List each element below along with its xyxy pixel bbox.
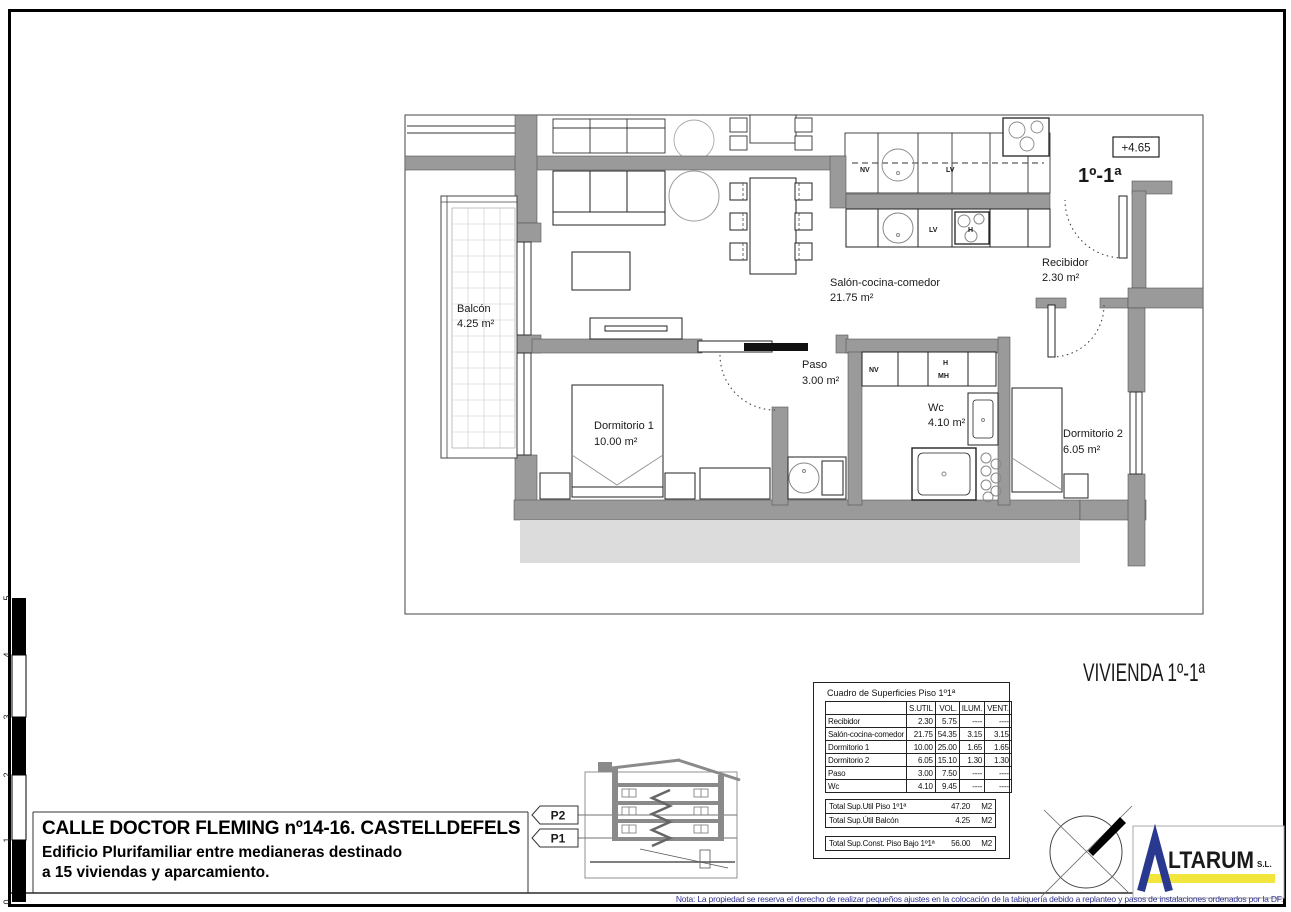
party-wall-step <box>830 156 846 208</box>
project-address: CALLE DOCTOR FLEMING nº14-16. CASTELLDEF… <box>42 818 522 840</box>
total-label: Total Sup.Const. Piso Bajo 1º1ª <box>826 839 935 848</box>
project-description-1: Edificio Plurifamiliar entre medianeras … <box>42 844 522 862</box>
sliding-door-leaf <box>744 343 808 351</box>
row-sutil: 2.30 <box>907 715 936 728</box>
bedroom1-east-wall <box>772 407 788 505</box>
room-label-recibidor: Recibidor <box>1042 257 1089 269</box>
row-vent: 1.30 <box>985 754 1012 767</box>
unit-label: 1º-1ª <box>1078 165 1122 187</box>
total-label: Total Sup.Util Piso 1º1ª <box>826 802 934 811</box>
surface-table-title: Cuadro de Superficies Piso 1º1ª <box>827 688 1009 698</box>
totals-block-2: Total Sup.Const. Piso Bajo 1º1ª 56.00 M2 <box>825 836 996 851</box>
total-unit: M2 <box>970 839 995 848</box>
left-wall-bottom <box>515 455 537 502</box>
row-sutil: 21.75 <box>907 728 936 741</box>
party-wall-west <box>405 156 845 170</box>
coffee-table <box>572 252 630 290</box>
hall-door-leaf <box>1048 305 1055 357</box>
logo-name: LTARUM <box>1168 847 1254 874</box>
north-compass <box>1042 806 1132 896</box>
row-ilum: ---- <box>959 715 984 728</box>
table-row: Recibidor 2.30 5.75 ---- ---- <box>826 715 1012 728</box>
total-value: 4.25 <box>934 816 970 825</box>
left-wall-block-1 <box>515 223 541 242</box>
surface-table-grid: S.UTIL VOL. ILUM. VENT. Recibidor 2.30 5… <box>825 701 1012 793</box>
row-vol: 9.45 <box>935 780 959 793</box>
row-vol: 7.50 <box>935 767 959 780</box>
dishwasher-label: LV <box>929 227 938 234</box>
room-area-recibidor: 2.30 m² <box>1042 272 1080 284</box>
room-label-balcon: Balcón <box>457 303 491 315</box>
room-area-balcon: 4.25 m² <box>457 318 495 330</box>
neighbour-fridge-label: NV <box>860 167 870 174</box>
utility-micro-label: MH <box>938 373 949 380</box>
total-row: Total Sup.Const. Piso Bajo 1º1ª 56.00 M2 <box>826 837 995 850</box>
dining-table <box>750 178 796 274</box>
row-sutil: 10.00 <box>907 741 936 754</box>
left-wall-top <box>515 115 537 223</box>
neighbour-dishwasher-label: LV <box>946 167 955 174</box>
sheet-graphics: 5 4 3 2 1 0 NV LV <box>0 0 1291 912</box>
row-name: Dormitorio 1 <box>826 741 907 754</box>
row-ilum: 3.15 <box>959 728 984 741</box>
total-row: Total Sup.Util Piso 1º1ª 47.20 M2 <box>826 800 995 813</box>
row-vent: ---- <box>985 767 1012 780</box>
row-vol: 5.75 <box>935 715 959 728</box>
table-header-row: S.UTIL VOL. ILUM. VENT. <box>826 702 1012 715</box>
row-ilum: 1.30 <box>959 754 984 767</box>
room-area-paso: 3.00 m² <box>802 375 840 387</box>
nightstand-1a <box>540 473 570 499</box>
surface-table: Cuadro de Superficies Piso 1º1ª S.UTIL V… <box>813 682 1010 859</box>
wc-east-wall <box>998 337 1010 505</box>
room-label-wc: Wc <box>928 402 944 414</box>
section-windows <box>622 789 708 833</box>
dresser <box>700 468 770 499</box>
room-label-salon: Salón-cocina-comedor <box>830 277 940 289</box>
col-sutil: S.UTIL <box>907 702 936 715</box>
row-name: Wc <box>826 780 907 793</box>
row-vent: 1.65 <box>985 741 1012 754</box>
row-name: Paso <box>826 767 907 780</box>
building-section <box>585 760 740 878</box>
utility-column <box>862 352 996 386</box>
scale-tick-0: 0 <box>2 899 12 904</box>
level-label: +4.65 <box>1121 143 1150 155</box>
laundry-nook <box>788 457 846 499</box>
tv <box>605 326 667 331</box>
vivienda-label: VIVIENDA 1º-1ª <box>1083 659 1206 687</box>
totals-block-1: Total Sup.Util Piso 1º1ª 47.20 M2 Total … <box>825 799 996 828</box>
row-vent: ---- <box>985 780 1012 793</box>
utility-oven-label: H <box>943 360 948 367</box>
row-vol: 15.10 <box>935 754 959 767</box>
table-row: Paso 3.00 7.50 ---- ---- <box>826 767 1012 780</box>
bedroom2-east-wall-top <box>1128 308 1145 392</box>
revision-note: Nota: La propiedad se reserva el derecho… <box>560 894 1283 904</box>
row-vent: 3.15 <box>985 728 1012 741</box>
corridor-south-wall <box>846 339 1006 353</box>
stair-wall-column <box>1132 191 1146 288</box>
bottom-wall <box>514 500 1080 520</box>
roof-slope <box>678 760 740 780</box>
total-unit: M2 <box>970 816 995 825</box>
room-area-salon: 21.75 m² <box>830 292 874 304</box>
project-description-2: a 15 viviendas y aparcamiento. <box>42 864 522 882</box>
room-label-dormitorio1: Dormitorio 1 <box>594 420 654 432</box>
scale-bar: 5 4 3 2 1 0 <box>2 595 26 904</box>
scale-tick-1: 1 <box>2 837 12 842</box>
p2-label: P2 <box>551 809 566 823</box>
hob-label: H <box>968 227 973 234</box>
sofa <box>553 171 665 225</box>
col-vent: VENT. <box>985 702 1012 715</box>
bed-2 <box>1012 388 1062 492</box>
row-name: Dormitorio 2 <box>826 754 907 767</box>
room-area-dormitorio2: 6.05 m² <box>1063 444 1101 456</box>
row-ilum: ---- <box>959 780 984 793</box>
total-value: 56.00 <box>935 839 971 848</box>
total-unit: M2 <box>970 802 995 811</box>
room-label-paso: Paso <box>802 359 827 371</box>
col-ilum: ILUM. <box>959 702 984 715</box>
row-ilum: 1.65 <box>959 741 984 754</box>
total-label: Total Sup.Útil Balcón <box>826 816 934 825</box>
logo-suffix: S.L. <box>1257 860 1272 869</box>
table-row: Dormitorio 2 6.05 15.10 1.30 1.30 <box>826 754 1012 767</box>
room-area-wc: 4.10 m² <box>928 417 966 429</box>
scale-tick-3: 3 <box>2 714 12 719</box>
table-row: Salón-cocina-comedor 21.75 54.35 3.15 3.… <box>826 728 1012 741</box>
scale-tick-2: 2 <box>2 772 12 777</box>
row-sutil: 6.05 <box>907 754 936 767</box>
stair-landing-wall <box>1128 288 1203 308</box>
floor-plan: NV LV <box>405 115 1203 614</box>
total-value: 47.20 <box>934 802 970 811</box>
row-vol: 25.00 <box>935 741 959 754</box>
row-vent: ---- <box>985 715 1012 728</box>
company-logo: LTARUM S.L. <box>1133 826 1284 898</box>
total-row: Total Sup.Útil Balcón 4.25 M2 <box>826 813 995 827</box>
col-vol: VOL. <box>935 702 959 715</box>
utility-fridge-label: NV <box>869 367 879 374</box>
scale-tick-5: 5 <box>2 595 12 600</box>
row-vol: 54.35 <box>935 728 959 741</box>
drawing-sheet: 5 4 3 2 1 0 NV LV <box>0 0 1291 912</box>
scale-tick-4: 4 <box>2 652 12 657</box>
kitchen-counter <box>846 209 1050 247</box>
table-row: Dormitorio 1 10.00 25.00 1.65 1.65 <box>826 741 1012 754</box>
row-name: Salón-cocina-comedor <box>826 728 907 741</box>
bedroom2-east-wall-bottom <box>1128 474 1145 566</box>
section-below-band <box>520 520 1080 563</box>
party-wall-east <box>846 194 1050 209</box>
entry-door-leaf <box>1119 196 1127 258</box>
row-name: Recibidor <box>826 715 907 728</box>
nightstand-1b <box>665 473 695 499</box>
nightstand-2 <box>1064 474 1088 498</box>
garage-ramp <box>640 849 728 868</box>
row-ilum: ---- <box>959 767 984 780</box>
row-sutil: 4.10 <box>907 780 936 793</box>
p1-label: P1 <box>551 832 566 846</box>
table-row: Wc 4.10 9.45 ---- ---- <box>826 780 1012 793</box>
room-label-dormitorio2: Dormitorio 2 <box>1063 428 1123 440</box>
room-area-dormitorio1: 10.00 m² <box>594 436 638 448</box>
row-sutil: 3.00 <box>907 767 936 780</box>
livingroom-bedroom1-wall <box>532 339 702 353</box>
wc-west-wall <box>848 352 862 505</box>
title-block: CALLE DOCTOR FLEMING nº14-16. CASTELLDEF… <box>42 812 522 884</box>
